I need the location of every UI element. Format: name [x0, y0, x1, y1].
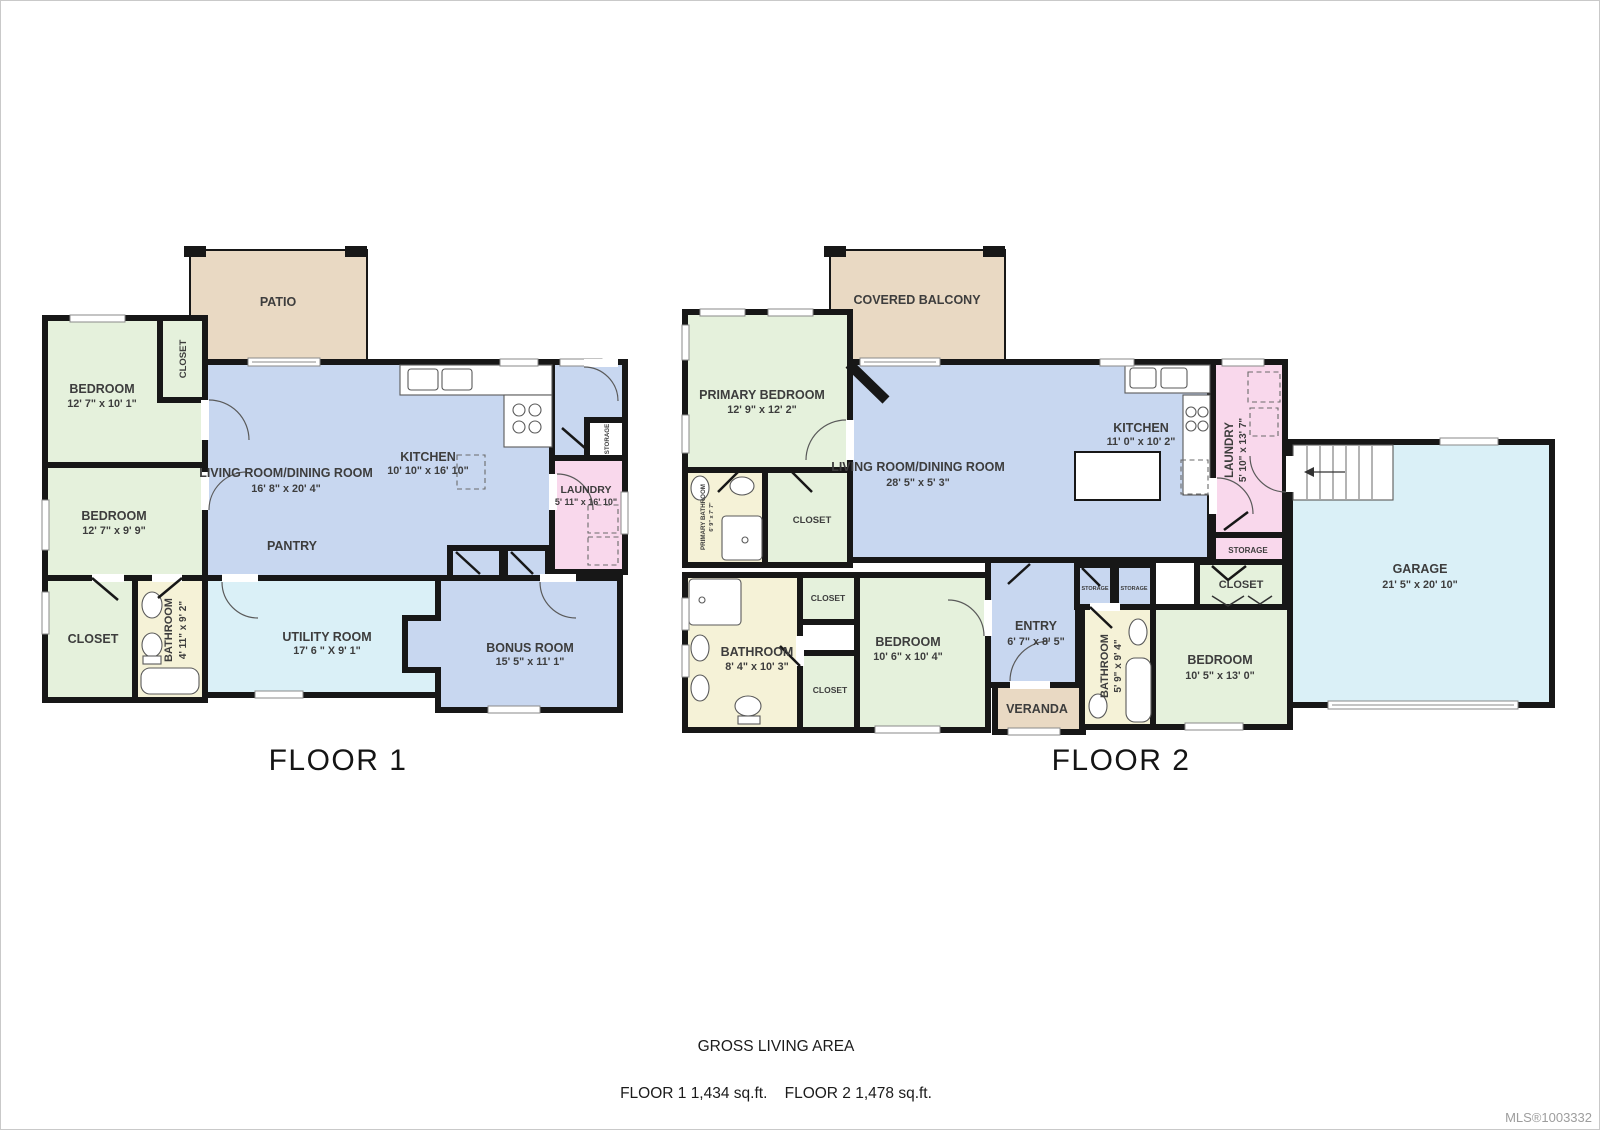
- floor1-laundry-label: LAUNDRY: [561, 484, 612, 496]
- floor2-kitchen-label: KITCHEN: [1113, 421, 1169, 435]
- kitchen-sink: [408, 369, 438, 390]
- window: [700, 309, 745, 316]
- floor2-bedroom-right-label: BEDROOM: [1187, 653, 1252, 667]
- kitchen-counter: [504, 395, 552, 447]
- patio-corner-post: [184, 246, 206, 257]
- window: [42, 500, 49, 550]
- sink: [691, 675, 709, 701]
- floor1-bonus-dims: 15' 5" x 11' 1": [496, 656, 565, 668]
- window: [621, 492, 628, 534]
- floor1-laundry-dims: 5' 11" x 16' 10": [555, 497, 617, 507]
- floor1-storage-label: STORAGE: [604, 424, 611, 454]
- stove-burner: [513, 404, 525, 416]
- floor2-primary-bathroom-dims: 6' 9" x 7' 7": [709, 502, 715, 532]
- floor2-laundry-dims: 5' 10" x 13' 7": [1238, 418, 1249, 483]
- stove-burner: [529, 421, 541, 433]
- kitchen-sink: [1130, 368, 1156, 388]
- sink: [730, 477, 754, 495]
- door-gap: [1010, 681, 1050, 689]
- floor1-kitchen-dims: 10' 10" x 16' 10": [387, 465, 468, 477]
- floor1-bedroom2-dims: 12' 7" x 9' 9": [82, 525, 145, 537]
- sink: [1129, 619, 1147, 645]
- window: [682, 415, 689, 453]
- window: [255, 691, 303, 698]
- floor1-pantry-label: PANTRY: [267, 539, 318, 553]
- window: [875, 726, 940, 733]
- floor1-utility-label: UTILITY ROOM: [282, 630, 371, 644]
- floor2-primary-bedroom-dims: 12' 9" x 12' 2": [727, 404, 796, 416]
- floor2-living-label: LIVING ROOM/DINING ROOM: [831, 460, 1005, 474]
- window: [488, 706, 540, 713]
- floor2-primary-bedroom-label: PRIMARY BEDROOM: [699, 388, 825, 402]
- floor2-primary-bathroom-label: PRIMARY BATHROOM: [700, 484, 707, 550]
- window: [1222, 359, 1264, 366]
- door-gap: [540, 574, 576, 582]
- floorplan-drawing: PATIO BEDROOM 12' 7" x 10' 1" CLOSET BED…: [0, 0, 1600, 1130]
- floor1-bedroom2-label: BEDROOM: [81, 509, 146, 523]
- floor1-patio-label: PATIO: [260, 295, 297, 309]
- floor2-kitchen-dims: 11' 0" x 10' 2": [1107, 436, 1176, 448]
- floor2-stairs: [1293, 445, 1393, 500]
- wall-eraser: [434, 621, 443, 667]
- kitchen-island: [1075, 452, 1160, 500]
- door-gap: [846, 420, 854, 460]
- floor1-utility-dims: 17' 6 " X 9' 1": [293, 645, 361, 657]
- window: [500, 359, 538, 366]
- floor2-veranda-label: VERANDA: [1006, 702, 1068, 716]
- toilet-tank: [143, 656, 161, 664]
- floor2-bathroom-mid-label: BATHROOM: [721, 645, 794, 659]
- shower: [722, 516, 762, 560]
- window: [1100, 359, 1134, 366]
- mls-number: MLS®1003332: [1505, 1110, 1592, 1125]
- stove-burner: [1186, 407, 1196, 417]
- shower: [689, 579, 741, 625]
- area-summary: GROSS LIVING AREA FLOOR 1 1,434 sq.ft. F…: [0, 1008, 1552, 1130]
- floor2-bathroom-mid-dims: 8' 4" x 10' 3": [725, 661, 788, 673]
- window: [42, 592, 49, 634]
- kitchen-sink: [1161, 368, 1187, 388]
- floor2-entry-dims: 6' 7" x 8' 5": [1007, 636, 1064, 648]
- toilet: [142, 633, 162, 657]
- floor2-storage-a-label: STORAGE: [1081, 586, 1108, 592]
- toilet: [735, 696, 761, 716]
- floor1-plan: PATIO BEDROOM 12' 7" x 10' 1" CLOSET BED…: [42, 246, 628, 777]
- patio-corner-post: [345, 246, 367, 257]
- stove-burner: [1198, 421, 1208, 431]
- floor2-bedroom-mid-label: BEDROOM: [875, 635, 940, 649]
- window: [682, 645, 689, 677]
- door-gap: [201, 400, 209, 440]
- floor2-laundry-label: LAUNDRY: [1224, 422, 1236, 478]
- bathtub: [1126, 658, 1151, 722]
- summary-title: GROSS LIVING AREA: [0, 1039, 1552, 1055]
- stove-burner: [513, 421, 525, 433]
- window: [70, 315, 125, 322]
- balcony-corner-post: [824, 246, 846, 257]
- floor1-bathroom-dims: 4' 11" x 9' 2": [178, 601, 189, 659]
- floor2-entry-label: ENTRY: [1015, 619, 1058, 633]
- door-gap: [1209, 478, 1217, 514]
- floor1-living-dims: 16' 8" x 20' 4": [251, 483, 320, 495]
- door-gap: [222, 574, 258, 582]
- floorplan-sheet: PATIO BEDROOM 12' 7" x 10' 1" CLOSET BED…: [0, 0, 1600, 1130]
- floor2-garage-label: GARAGE: [1393, 562, 1448, 576]
- floor1-living-label: LIVING ROOM/DINING ROOM: [199, 466, 373, 480]
- floor2-bedroom-mid-dims: 10' 6" x 10' 4": [873, 651, 942, 663]
- floor2-plan: COVERED BALCONY PRIMARY BEDROOM 12' 9" x…: [682, 246, 1552, 777]
- floor1-title: FLOOR 1: [269, 744, 408, 777]
- window: [768, 309, 813, 316]
- floor1-bathroom-label: BATHROOM: [163, 598, 175, 662]
- floor2-balcony-label: COVERED BALCONY: [853, 293, 981, 307]
- floor2-garage-dims: 21' 5" x 20' 10": [1382, 579, 1457, 591]
- sink: [691, 635, 709, 661]
- floor1-bedroom1-dims: 12' 7" x 10' 1": [67, 398, 136, 410]
- floor1-bedroom1-label: BEDROOM: [69, 382, 134, 396]
- stove-burner: [1198, 407, 1208, 417]
- floor2-storage-b-label: STORAGE: [1120, 586, 1147, 592]
- floor2-title: FLOOR 2: [1052, 744, 1191, 777]
- floor1-kitchen-label: KITCHEN: [400, 450, 456, 464]
- floor2-bathroom-right-dims: 5' 9" x 9' 4": [1113, 639, 1124, 692]
- floor2-bedroom-right-room: [1153, 607, 1290, 727]
- floor1-closet1-label: CLOSET: [178, 340, 189, 379]
- floor2-bedroom-right-dims: 10' 5" x 13' 0": [1185, 670, 1254, 682]
- floor2-closet-right-label: CLOSET: [1219, 579, 1264, 591]
- floor1-closet2-label: CLOSET: [68, 632, 119, 646]
- window: [1008, 728, 1060, 735]
- summary-floor-areas: FLOOR 1 1,434 sq.ft. FLOOR 2 1,478 sq.ft…: [0, 1086, 1552, 1102]
- floor2-closet-mid-lower-label: CLOSET: [813, 685, 848, 695]
- floor2-primary-closet-label: CLOSET: [793, 515, 832, 526]
- stove-burner: [1186, 421, 1196, 431]
- window: [1440, 438, 1498, 445]
- floor1-bonus-bump: [405, 618, 438, 670]
- window: [1185, 723, 1243, 730]
- floor2-storage-right-label: STORAGE: [1228, 546, 1268, 555]
- door-gap: [1286, 456, 1294, 492]
- shower-drain: [699, 597, 705, 603]
- kitchen-sink: [442, 369, 472, 390]
- floor1-bonus-label: BONUS ROOM: [486, 641, 574, 655]
- toilet-tank: [738, 716, 760, 724]
- floor2-bathroom-right-label: BATHROOM: [1099, 634, 1111, 698]
- window: [682, 598, 689, 630]
- door-gap: [584, 359, 618, 367]
- window: [682, 325, 689, 360]
- floor2-closet-mid-upper-label: CLOSET: [811, 593, 846, 603]
- door-gap: [984, 600, 992, 636]
- balcony-corner-post: [983, 246, 1005, 257]
- stove-burner: [529, 404, 541, 416]
- shower-drain: [742, 537, 748, 543]
- bathtub: [141, 668, 199, 694]
- floor2-living-dims: 28' 5" x 5' 3": [886, 477, 949, 489]
